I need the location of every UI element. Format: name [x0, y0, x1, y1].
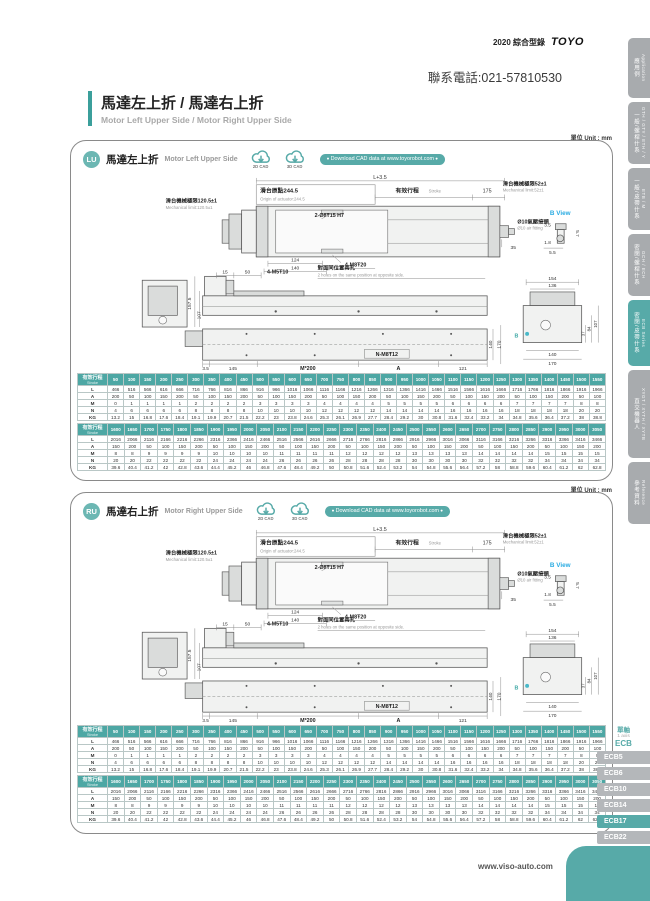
table-cell: 100 — [356, 443, 373, 450]
table-cell: 14 — [397, 759, 413, 766]
table-cell: 200 — [365, 393, 381, 400]
table-cell: 150 — [156, 745, 172, 752]
table-cell: 2066 — [124, 436, 141, 443]
motor-block — [229, 566, 242, 601]
row-label: KG — [78, 414, 108, 421]
dim-170-end-label: 170 — [548, 713, 556, 719]
table-cell: 15 — [572, 802, 589, 809]
table-cell: 50 — [273, 443, 290, 450]
table-cell: 52.4 — [373, 464, 390, 471]
stroke-col-header: 750 — [332, 726, 348, 738]
table-cell: 35.6 — [525, 766, 541, 773]
table-cell: 62.8 — [589, 464, 606, 471]
mech-limit-120-en: Mechanical limit:120.5±1 — [166, 205, 214, 210]
download-cad-link[interactable]: Download CAD data at www.toyorobot.com — [325, 506, 450, 517]
table-cell: 6 — [140, 759, 156, 766]
stroke-col-header: 2000 — [240, 776, 257, 788]
table-cell: 6 — [461, 400, 477, 407]
mech-limit-120-en: Mechanical limit:120.5±1 — [166, 557, 214, 562]
b-dim-35: 3.5 — [544, 575, 551, 580]
stroke-col-header: 1950 — [224, 424, 241, 436]
table-cell: 59.6 — [522, 464, 539, 471]
stroke-col-header: 2400 — [373, 424, 390, 436]
origin-label-zh: 滑台原點244.5 — [260, 539, 299, 547]
b-arrow-label: B — [514, 686, 518, 692]
table-cell: 32 — [522, 809, 539, 816]
stroke-col-header: 2600 — [439, 424, 456, 436]
table-cell: 11 — [307, 450, 324, 457]
table-cell: 4 — [365, 400, 381, 407]
row-label: L — [78, 386, 108, 393]
table-cell: 54.8 — [423, 816, 440, 823]
lu-badge: LU — [83, 151, 100, 168]
dim-l-label: L+3.5 — [373, 527, 387, 533]
table-cell: 11 — [323, 802, 340, 809]
table-cell: 6 — [493, 752, 509, 759]
dim-3-5-label: 3.5 — [202, 718, 209, 723]
motor-fold-block — [205, 628, 226, 647]
table-cell: 38.8 — [589, 414, 605, 421]
table-cell: 34 — [493, 766, 509, 773]
table-cell: 17.6 — [156, 414, 172, 421]
dim-140-side-label: 140 — [488, 340, 494, 348]
table-cell: 22 — [141, 457, 158, 464]
table-cell: 11 — [307, 802, 324, 809]
table-cell: 100 — [140, 745, 156, 752]
table-cell: 1 — [140, 752, 156, 759]
table-cell: 100 — [461, 393, 477, 400]
table-row: N466668888101010101212121214141414161616… — [78, 407, 606, 414]
table-cell: 1916 — [573, 738, 589, 745]
sidebar-tab-etb-m[interactable]: 一般/皮帶什系 ETB / M — [628, 168, 650, 230]
cad-2d-download[interactable]: 2D CAD — [250, 150, 272, 169]
table-cell: 10 — [257, 450, 274, 457]
table-cell: 7 — [557, 752, 573, 759]
table-cell: 3 — [284, 752, 300, 759]
table-cell: 3216 — [506, 788, 523, 795]
table-cell: 54.8 — [423, 464, 440, 471]
table-cell: 3266 — [522, 788, 539, 795]
table-cell: 716 — [188, 386, 204, 393]
table-cell: 2716 — [340, 436, 357, 443]
table-cell: 3016 — [439, 788, 456, 795]
table-cell: 22.2 — [252, 414, 268, 421]
table-cell: 23 — [268, 414, 284, 421]
dim-84-label: 84 — [586, 326, 591, 331]
table-cell: 200 — [589, 443, 606, 450]
table-cell: 42 — [157, 464, 174, 471]
stroke-col-header: 2300 — [340, 424, 357, 436]
table-cell: 58.8 — [506, 816, 523, 823]
table-cell: 25.3 — [316, 414, 332, 421]
table-row: N202022222222242424242626262628282828303… — [78, 457, 606, 464]
table-cell: 1116 — [316, 386, 332, 393]
table-cell: 2016 — [108, 788, 125, 795]
sidebar-tab-ecb-series[interactable]: 密閉/皮帶什系 ECB Series — [628, 300, 650, 366]
stroke-col-header: 1900 — [207, 424, 224, 436]
table-cell: 41.2 — [141, 464, 158, 471]
stroke-col-header: 650 — [300, 726, 316, 738]
ecb-nav-item-ecb6[interactable]: ECB6 — [597, 767, 650, 780]
stroke-col-header: 1400 — [541, 374, 557, 386]
table-cell: 16 — [461, 759, 477, 766]
table-cell: 3166 — [489, 436, 506, 443]
ru-technical-drawing: L+3.5 滑台原點244.5 Origin of actuator:244.5… — [71, 522, 612, 723]
table-cell: 22 — [141, 809, 158, 816]
b-dim-35: 3.5 — [544, 223, 551, 228]
table-cell: 200 — [172, 393, 188, 400]
stroke-col-header: 1600 — [108, 776, 125, 788]
table-cell: 150 — [240, 443, 257, 450]
table-cell: 100 — [423, 795, 440, 802]
table-cell: 866 — [236, 738, 252, 745]
table-cell: 1166 — [332, 738, 348, 745]
table-cell: 716 — [188, 738, 204, 745]
table-cell: 100 — [140, 393, 156, 400]
table-cell: 2 — [188, 752, 204, 759]
table-cell: 18 — [525, 759, 541, 766]
table-cell: 8 — [188, 407, 204, 414]
table-cell: 3366 — [556, 788, 573, 795]
stroke-col-header: 2800 — [506, 776, 523, 788]
sidebar-tab-reference[interactable]: 參考資料 Reference — [628, 462, 650, 524]
mech-limit-120-zh: 滑台機械極限120.5±1 — [166, 196, 217, 204]
table-cell: 100 — [556, 795, 573, 802]
table-cell: 28 — [390, 457, 407, 464]
stroke-col-header: 250 — [172, 726, 188, 738]
table-cell: 1616 — [477, 738, 493, 745]
tab-label-en: GCH / ECH — [641, 251, 646, 279]
table-cell: 12 — [373, 802, 390, 809]
table-cell: 15 — [556, 802, 573, 809]
ecb-nav-item-ecb5[interactable]: ECB5 — [597, 751, 650, 764]
table-cell: 18 — [509, 407, 525, 414]
table-cell: 10 — [252, 407, 268, 414]
table-cell: 100 — [397, 745, 413, 752]
stroke-col-header: 500 — [252, 374, 268, 386]
table-cell: 50 — [381, 393, 397, 400]
dim-l-label: L+3.5 — [373, 175, 387, 181]
sidebar-tab-application[interactable]: 應用例 Application — [628, 38, 650, 98]
b-dim-18: 1.8 — [544, 592, 551, 597]
table-cell: 13 — [423, 802, 440, 809]
table-row: L201620662116216622162266231623662416246… — [78, 788, 606, 795]
stroke-col-header: 600 — [284, 726, 300, 738]
table-row: M0111122223333444455556666777788 — [78, 752, 606, 759]
cad-3d-download[interactable]: 3D CAD — [289, 502, 311, 521]
sidebar-tab-gth-gty-eth-y[interactable]: 一般/螺桿什系 GTH / GTY / ETH / Y — [628, 102, 650, 164]
table-cell: 100 — [157, 795, 174, 802]
table-cell: 30 — [423, 809, 440, 816]
table-cell: 3 — [268, 752, 284, 759]
table-cell: 2 — [204, 752, 220, 759]
stroke-col-header: 1300 — [509, 726, 525, 738]
stroke-col-header: 1100 — [445, 726, 461, 738]
row-label: N — [78, 759, 108, 766]
table-cell: 200 — [108, 745, 124, 752]
table-cell: 2966 — [423, 788, 440, 795]
dim-35-label: 35 — [511, 597, 517, 603]
row-label: M — [78, 450, 108, 457]
panel-title-zh: 馬達右上折 — [106, 504, 159, 519]
table-cell: 25.3 — [316, 766, 332, 773]
table-cell: 200 — [300, 745, 316, 752]
table-cell: 8 — [124, 802, 141, 809]
table-cell: 36.4 — [541, 414, 557, 421]
table-cell: 6 — [124, 407, 140, 414]
table-cell: 32 — [473, 457, 490, 464]
table-cell: 3216 — [506, 436, 523, 443]
panel-motor-right-upper: RU 馬達右上折 Motor Right Upper Side 2D CAD 3… — [70, 492, 613, 834]
table-cell: 50 — [323, 816, 340, 823]
table-cell: 1716 — [509, 738, 525, 745]
mech-limit-52-en: Mechanical limit:52±1 — [503, 188, 545, 193]
cad-3d-download[interactable]: 3D CAD — [284, 150, 306, 169]
table-cell: 11 — [273, 450, 290, 457]
table-cell: 2416 — [240, 788, 257, 795]
table-cell: 6 — [156, 407, 172, 414]
table-cell: 10 — [284, 407, 300, 414]
table-cell: 34 — [493, 414, 509, 421]
table-cell: 7 — [525, 400, 541, 407]
cad-3d-label: 3D CAD — [292, 516, 308, 521]
stroke-col-header: 450 — [236, 374, 252, 386]
stroke-col-header: 100 — [124, 374, 140, 386]
panel-header: LU 馬達左上折 Motor Left Upper Side 2D CAD 3D… — [71, 141, 612, 170]
table-row: KG39.640.441.24242.843.644.445.24646.847… — [78, 816, 606, 823]
dim-121-label: 121 — [459, 718, 467, 723]
table-cell: 62 — [572, 816, 589, 823]
stroke-col-header: 1350 — [525, 726, 541, 738]
download-cad-link[interactable]: Download CAD data at www.toyorobot.com — [320, 154, 445, 165]
row-label: KG — [78, 766, 108, 773]
table-cell: 50 — [188, 745, 204, 752]
table-cell: 8 — [124, 450, 141, 457]
table-cell: 816 — [220, 738, 236, 745]
table-cell: 28 — [373, 809, 390, 816]
dim-154-label: 154 — [548, 276, 556, 282]
table-cell: 3 — [300, 400, 316, 407]
table-cell: 1 — [156, 752, 172, 759]
row-label: A — [78, 443, 108, 450]
dim-170-end-label: 170 — [548, 361, 556, 367]
table-cell: 100 — [489, 795, 506, 802]
table-cell: 2166 — [157, 436, 174, 443]
table-cell: 32 — [473, 809, 490, 816]
table-cell: 6 — [461, 752, 477, 759]
table-cell: 2566 — [290, 788, 307, 795]
table-cell: 24 — [207, 809, 224, 816]
stroke-col-header: 2600 — [439, 776, 456, 788]
table-cell: 1766 — [525, 386, 541, 393]
stroke-col-header: 2050 — [257, 776, 274, 788]
panel-title-en: Motor Left Upper Side — [165, 156, 238, 163]
table-cell: 6 — [445, 752, 461, 759]
table-cell: 2916 — [406, 788, 423, 795]
table-cell: 19.9 — [204, 766, 220, 773]
table-cell: 150 — [541, 393, 557, 400]
ecb-nav-item-ecb17[interactable]: ECB17 — [597, 815, 650, 828]
table-cell: 24 — [224, 809, 241, 816]
dim-140-label: 140 — [291, 618, 299, 624]
table-cell: 50 — [340, 795, 357, 802]
table-cell: 14 — [506, 802, 523, 809]
table-cell: 150 — [541, 745, 557, 752]
table-cell: 200 — [429, 745, 445, 752]
table-cell: 100 — [157, 443, 174, 450]
stroke-table-1: 有效行程Stroke501001502002503003504004505005… — [77, 373, 606, 421]
table-cell: 14 — [489, 802, 506, 809]
table-cell: 61.2 — [556, 464, 573, 471]
table-cell: 1466 — [429, 386, 445, 393]
dim-154-label: 154 — [548, 628, 556, 634]
table-cell: 200 — [257, 795, 274, 802]
table-cell: 3316 — [539, 788, 556, 795]
table-cell: 3416 — [572, 788, 589, 795]
sidebar: 應用例 Application 一般/螺桿什系 GTH / GTY / ETH … — [628, 38, 650, 528]
table-cell: 1866 — [557, 738, 573, 745]
table-cell: 26 — [323, 809, 340, 816]
table-cell: 566 — [140, 738, 156, 745]
table-cell: 16 — [461, 407, 477, 414]
table-cell: 15 — [124, 414, 140, 421]
tab-label-zh: 應用例 — [632, 58, 640, 78]
table-cell: 51.6 — [356, 464, 373, 471]
table-cell: 32 — [506, 457, 523, 464]
table-cell: 0 — [108, 752, 124, 759]
table-cell: 18 — [525, 407, 541, 414]
table-cell: 40.4 — [124, 816, 141, 823]
table-cell: 1 — [140, 400, 156, 407]
ecb-nav-item-ecb22[interactable]: ECB22 — [597, 831, 650, 844]
ecb-nav-item-ecb10[interactable]: ECB10 — [597, 783, 650, 796]
dim-107-end-label: 107 — [593, 672, 598, 680]
table-cell: 150 — [413, 393, 429, 400]
row-label: N — [78, 809, 108, 816]
footer-url: www.viso-auto.com — [478, 862, 553, 871]
table-cell: 200 — [190, 443, 207, 450]
table-cell: 9 — [141, 802, 158, 809]
table-cell: 3166 — [489, 788, 506, 795]
table-cell: 12 — [340, 802, 357, 809]
table-cell: 29.2 — [397, 766, 413, 773]
plan-view: L+3.5 滑台原點244.5 Origin of actuator:244.5… — [166, 175, 550, 274]
table-cell: 3066 — [456, 788, 473, 795]
table-cell: 1366 — [397, 738, 413, 745]
table-cell: 50 — [207, 795, 224, 802]
table-cell: 13.2 — [108, 766, 124, 773]
stroke-table-1: 有效行程Stroke501001502002503003504004505005… — [77, 725, 606, 773]
table-cell: 2 — [220, 400, 236, 407]
sidebar-tab-xygt-xyth-xytb[interactable]: 直交機器人 XYGT / XYTH / XYTB — [628, 370, 650, 458]
stroke-col-header: 200 — [156, 726, 172, 738]
table-cell: 5 — [381, 400, 397, 407]
table-cell: 1416 — [413, 738, 429, 745]
table-cell: 14 — [522, 450, 539, 457]
table-cell: 2516 — [273, 436, 290, 443]
rail-side — [203, 648, 487, 667]
table-cell: 30 — [439, 457, 456, 464]
table-cell: 28 — [356, 809, 373, 816]
table-cell: 13 — [423, 450, 440, 457]
table-cell: 47.6 — [273, 816, 290, 823]
table-cell: 4 — [348, 752, 364, 759]
stroke-col-header: 2700 — [473, 424, 490, 436]
table-cell: 14 — [381, 759, 397, 766]
table-cell: 50 — [252, 745, 268, 752]
table-cell: 12 — [365, 407, 381, 414]
table-cell: 8 — [220, 407, 236, 414]
table-cell: 10 — [284, 759, 300, 766]
table-cell: 4 — [365, 752, 381, 759]
table-cell: 23.8 — [284, 766, 300, 773]
table-cell: 50 — [509, 393, 525, 400]
table-cell: 31.6 — [445, 766, 461, 773]
stroke-col-header: 2850 — [522, 424, 539, 436]
dim-124-label: 124 — [291, 258, 299, 264]
stroke-col-header: 1850 — [190, 776, 207, 788]
stroke-col-header: 1500 — [573, 726, 589, 738]
table-cell: 44.4 — [207, 816, 224, 823]
table-cell: 2116 — [141, 788, 158, 795]
table-cell: 2 — [188, 400, 204, 407]
table-cell: 36.4 — [541, 766, 557, 773]
bottom-view: N-M8Ŧ12 140 170 3.5 145 M*200 A 121 — [185, 677, 502, 723]
table-cell: 53.2 — [390, 816, 407, 823]
table-cell: 6 — [493, 400, 509, 407]
table-cell: 8 — [573, 400, 589, 407]
ecb-nav-item-ecb14[interactable]: ECB14 — [597, 799, 650, 812]
table-cell: 5 — [397, 400, 413, 407]
table-cell: 9 — [141, 450, 158, 457]
table-cell: 33.2 — [477, 414, 493, 421]
end-body — [523, 306, 581, 343]
table-cell: 150 — [307, 795, 324, 802]
table-cell: 13.2 — [108, 414, 124, 421]
table-cell: 29.2 — [397, 414, 413, 421]
table-cell: 6 — [156, 759, 172, 766]
table-cell: 1066 — [300, 386, 316, 393]
table-cell: 8 — [236, 759, 252, 766]
table-cell: 23.8 — [284, 414, 300, 421]
stroke-col-header: 1750 — [157, 776, 174, 788]
table-cell: 39.6 — [108, 816, 125, 823]
stroke-header: 有效行程Stroke — [78, 726, 108, 738]
row-label: N — [78, 407, 108, 414]
table-cell: 12 — [348, 759, 364, 766]
stroke-col-header: 2250 — [323, 776, 340, 788]
table-cell: 50 — [124, 393, 140, 400]
table-cell: 7 — [541, 752, 557, 759]
table-cell: 15 — [572, 450, 589, 457]
cad-2d-download[interactable]: 2D CAD — [255, 502, 277, 521]
air-fitting-label-en: Ø10 air fitting — [517, 226, 543, 231]
dim-37-label: 37 — [581, 331, 586, 336]
holes-2xd8-label: 2-Ø8Ŧ15 H7 — [315, 213, 344, 219]
stroke-col-header: 500 — [252, 726, 268, 738]
stroke-col-header: 350 — [204, 726, 220, 738]
bottom-view: N-M8Ŧ12 140 170 3.5 145 M*200 A 121 — [185, 325, 502, 371]
stroke-col-header: 350 — [204, 374, 220, 386]
table-cell: 50 — [509, 745, 525, 752]
table-cell: 58.8 — [506, 464, 523, 471]
technical-drawing-svg: L+3.5 滑台原點244.5 Origin of actuator:244.5… — [76, 171, 607, 371]
tab-label-zh: 一般/皮帶什系 — [632, 178, 640, 220]
sidebar-tab-gch-ech[interactable]: 密閉/螺桿什系 GCH / ECH — [628, 234, 650, 296]
table-cell: 1 — [172, 400, 188, 407]
table-cell: 21.5 — [236, 414, 252, 421]
stroke-col-header: 2650 — [456, 424, 473, 436]
